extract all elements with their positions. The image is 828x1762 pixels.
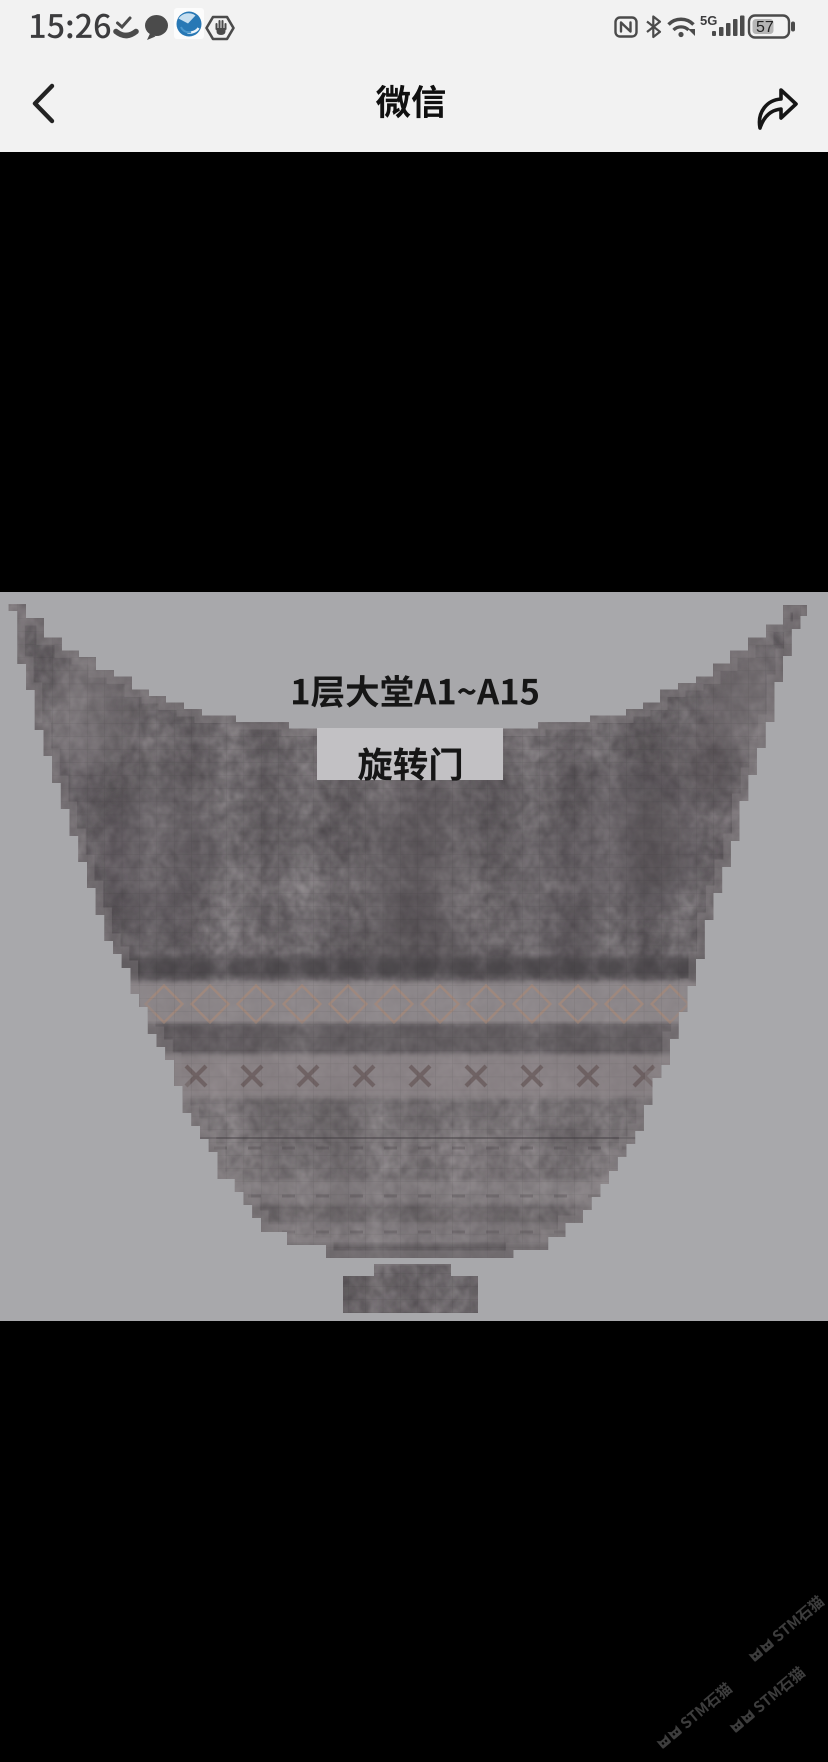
svg-text:5G: 5G [700,13,717,28]
svg-text:57: 57 [756,19,774,36]
